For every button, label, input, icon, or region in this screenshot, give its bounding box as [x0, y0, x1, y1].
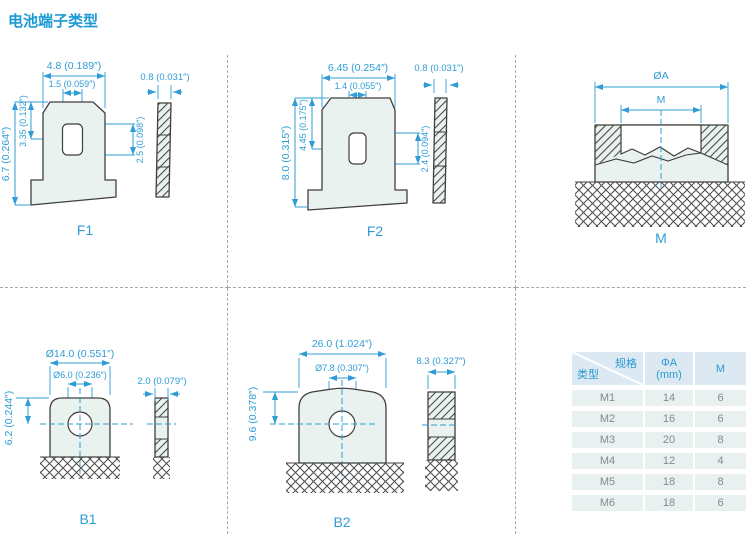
spec-m: 6 [695, 390, 746, 406]
spec-row-m6: M6 18 6 [572, 495, 746, 511]
f1-drawing: 4.8 (0.189″) 1.5 (0.059″) 6.7 (0.264″) 3… [0, 55, 227, 287]
f1-dim-total-height: 6.7 (0.264″) [0, 127, 12, 182]
spec-m: 6 [695, 411, 746, 427]
b2-side-view: 8.3 (0.327″) [416, 356, 465, 491]
spec-type: M1 [572, 390, 643, 406]
m-dim-thread-size: M [657, 94, 666, 106]
f2-slot-hole [349, 133, 366, 164]
spec-phi-a: 18 [645, 495, 693, 511]
f1-front-view [31, 102, 116, 205]
panel-f2: 6.45 (0.254″) 1.4 (0.055″) 8.0 (0.315″) … [228, 55, 516, 288]
spec-phi-a: 20 [645, 432, 693, 448]
m-drawing: ØA M M [516, 55, 746, 287]
f2-drawing: 6.45 (0.254″) 1.4 (0.055″) 8.0 (0.315″) … [228, 55, 515, 287]
f2-dim-upper-height: 4.45 (0.175″) [298, 99, 308, 151]
m-nut-section [595, 110, 728, 189]
b2-dim-thickness: 8.3 (0.327″) [416, 356, 465, 367]
spec-type: M4 [572, 453, 643, 469]
spec-row-m1: M1 14 6 [572, 390, 746, 406]
f2-dim-slot-width: 1.4 (0.055″) [335, 81, 382, 91]
spec-type: M5 [572, 474, 643, 490]
f1-dim-slot-height: 2.5 (0.098″) [135, 117, 145, 164]
f1-dim-upper-height: 3.35 (0.132″) [18, 95, 28, 147]
f1-label: F1 [77, 222, 94, 238]
spec-phi-a: 18 [645, 474, 693, 490]
b2-dim-outer-width: 26.0 (1.024″) [312, 338, 372, 350]
m-base-ground [575, 182, 745, 227]
spec-phi-a: 16 [645, 411, 693, 427]
spec-header-phi-a: ΦA (mm) [645, 352, 693, 385]
b2-base-ground [286, 463, 404, 493]
spec-type: M2 [572, 411, 643, 427]
b1-dim-hole-diameter: Ø6.0 (0.236″) [53, 370, 107, 380]
f2-dim-total-height: 8.0 (0.315″) [280, 126, 292, 181]
f2-dim-thickness: 0.8 (0.031″) [414, 63, 463, 74]
f1-slot-hole [63, 124, 83, 155]
spec-m: 6 [695, 495, 746, 511]
spec-header-corner: 规格 类型 [572, 352, 643, 385]
spec-row-m2: M2 16 6 [572, 411, 746, 427]
f1-dim-thickness: 0.8 (0.031″) [140, 72, 189, 83]
spec-row-m3: M3 20 8 [572, 432, 746, 448]
panel-b2: 26.0 (1.024″) Ø7.8 (0.307″) 9.6 (0.378″) [228, 288, 516, 534]
b1-drawing: Ø14.0 (0.551″) Ø6.0 (0.236″) 6.2 (0.244″… [0, 288, 227, 534]
f2-dim-top-width: 6.45 (0.254″) [328, 62, 388, 74]
f1-dim-top-width: 4.8 (0.189″) [47, 60, 102, 72]
f2-dim-slot-height: 2.4 (0.094″) [420, 126, 430, 173]
panel-m: ØA M M [516, 55, 746, 288]
spec-type: M3 [572, 432, 643, 448]
spec-m: 8 [695, 432, 746, 448]
b1-side-view: 2.0 (0.079″) [137, 376, 186, 479]
b2-dim-height: 9.6 (0.378″) [247, 387, 259, 442]
spec-m: 8 [695, 474, 746, 490]
panel-b1: Ø14.0 (0.551″) Ø6.0 (0.236″) 6.2 (0.244″… [0, 288, 228, 534]
m-label: M [655, 230, 667, 246]
terminal-grid: 4.8 (0.189″) 1.5 (0.059″) 6.7 (0.264″) 3… [0, 55, 746, 534]
f1-dim-slot-width: 1.5 (0.059″) [49, 79, 96, 89]
spec-phi-a: 12 [645, 453, 693, 469]
spec-m: 4 [695, 453, 746, 469]
battery-terminal-types-page: 电池端子类型 4.8 (0.189″) 1.5 (0.059″) 6.7 (0.… [0, 0, 746, 534]
f2-label: F2 [367, 223, 384, 239]
b1-label: B1 [79, 511, 96, 527]
b1-base-ground [40, 457, 120, 479]
b1-dim-height: 6.2 (0.244″) [3, 391, 15, 446]
m-dim-outer-diameter: ØA [653, 70, 668, 82]
f2-front-view [308, 98, 407, 210]
spec-type: M6 [572, 495, 643, 511]
panel-spec-table: 规格 类型 ΦA (mm) M M1 14 6 [516, 288, 746, 534]
b2-drawing: 26.0 (1.024″) Ø7.8 (0.307″) 9.6 (0.378″) [228, 288, 515, 534]
spec-row-m4: M4 12 4 [572, 453, 746, 469]
b2-label: B2 [333, 514, 350, 530]
spec-table-header: 规格 类型 ΦA (mm) M [572, 352, 746, 385]
spec-header-spec: 规格 [615, 355, 637, 371]
spec-table: 规格 类型 ΦA (mm) M M1 14 6 [572, 352, 746, 511]
b2-dim-hole-diameter: Ø7.8 (0.307″) [315, 363, 369, 373]
b1-dim-outer-diameter: Ø14.0 (0.551″) [46, 348, 115, 360]
spec-row-m5: M5 18 8 [572, 474, 746, 490]
b1-dim-thickness: 2.0 (0.079″) [137, 376, 186, 387]
page-title: 电池端子类型 [0, 0, 746, 55]
spec-header-type: 类型 [577, 366, 599, 382]
spec-header-m: M [695, 352, 746, 385]
panel-f1: 4.8 (0.189″) 1.5 (0.059″) 6.7 (0.264″) 3… [0, 55, 228, 288]
f1-side-view: 0.8 (0.031″) [140, 72, 189, 197]
spec-phi-a: 14 [645, 390, 693, 406]
